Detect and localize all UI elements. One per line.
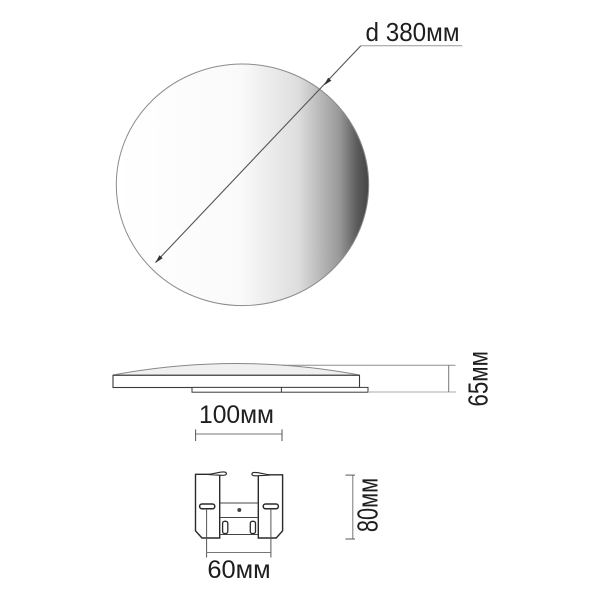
svg-text:d 380мм: d 380мм xyxy=(366,17,460,47)
svg-text:80мм: 80мм xyxy=(353,478,385,532)
svg-text:100мм: 100мм xyxy=(199,401,274,429)
svg-text:65мм: 65мм xyxy=(462,351,493,407)
svg-text:60мм: 60мм xyxy=(207,556,270,584)
